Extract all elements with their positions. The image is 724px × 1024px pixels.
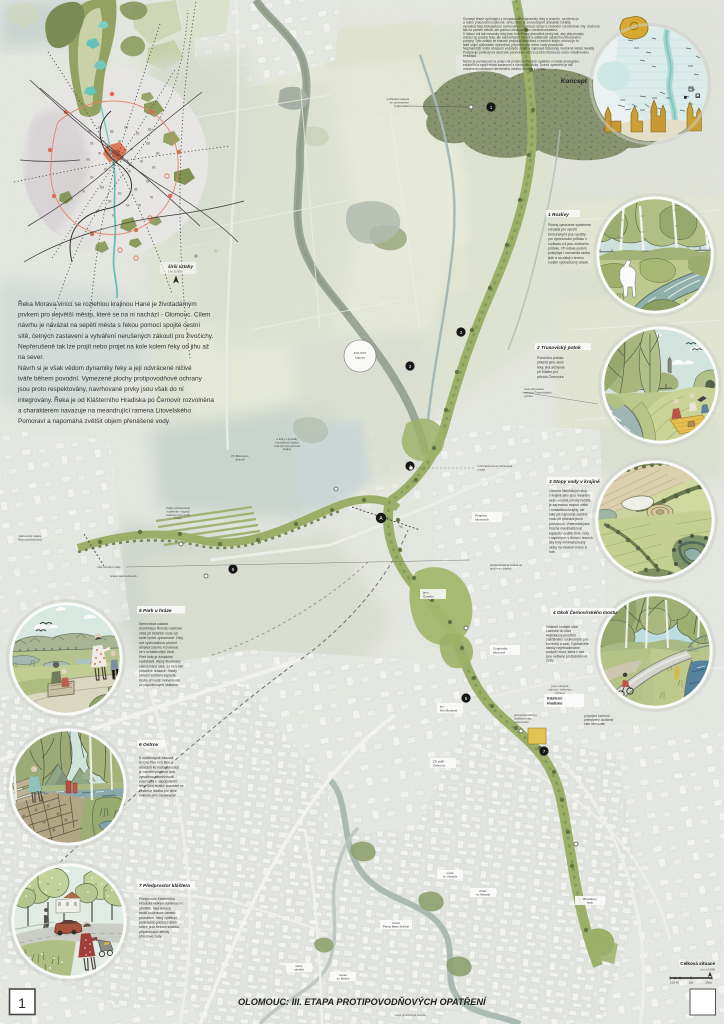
svg-text:0 20 40: 0 20 40 [670,981,679,985]
svg-text:OLOMOUC: III. ETAPA PROTIPOVOD: OLOMOUC: III. ETAPA PROTIPOVODŇOVÝCH OPA… [238,996,487,1007]
svg-text:100: 100 [689,981,694,985]
svg-text:mapa podkladová situace: mapa podkladová situace [394,1013,426,1017]
svg-text:200m: 200m [706,981,713,985]
svg-text:1 m 1:5 000: 1 m 1:5 000 [700,968,715,972]
svg-text:1: 1 [18,995,26,1011]
svg-text:Celková situace: Celková situace [680,961,715,966]
